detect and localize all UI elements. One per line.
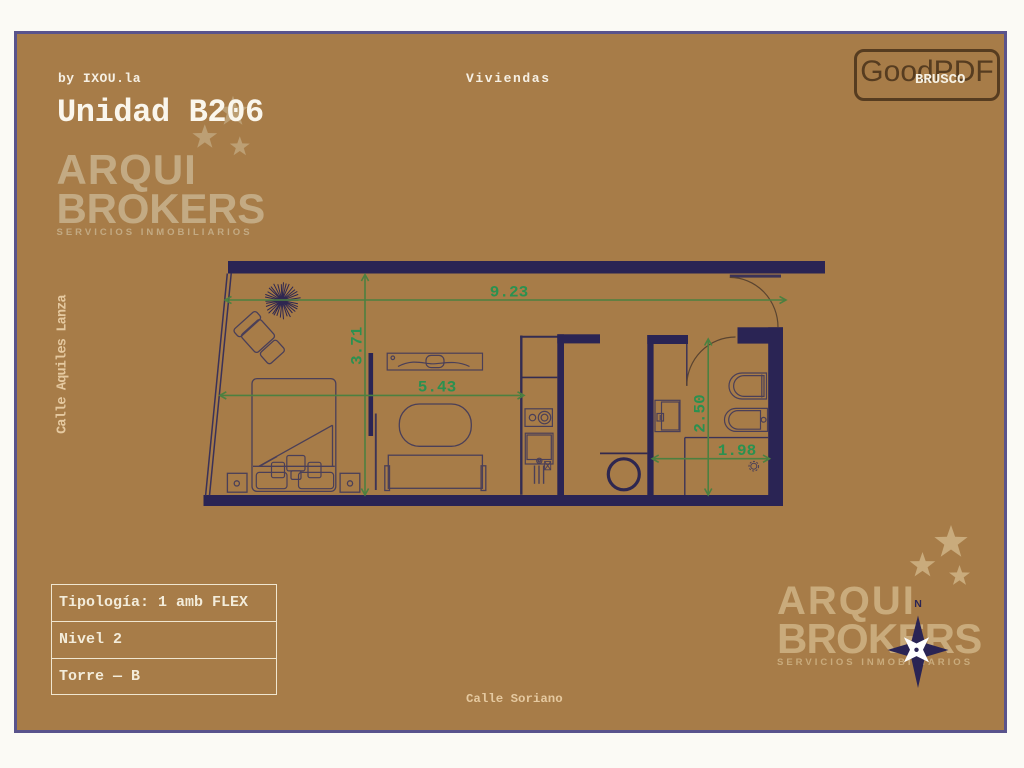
svg-text:N: N [914,598,922,610]
